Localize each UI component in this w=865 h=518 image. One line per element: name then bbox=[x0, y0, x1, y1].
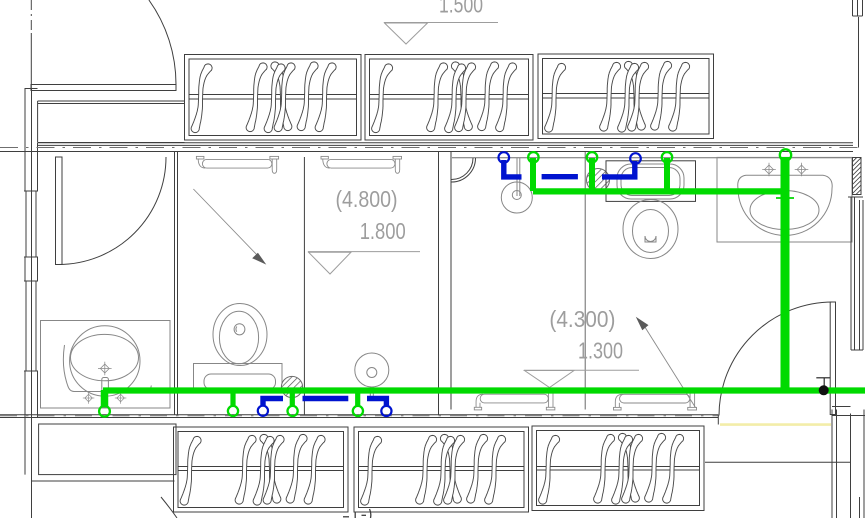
svg-text:1.800: 1.800 bbox=[360, 218, 406, 244]
svg-text:1.500: 1.500 bbox=[439, 0, 483, 18]
svg-text:(4.800): (4.800) bbox=[336, 186, 398, 212]
svg-text:1.300: 1.300 bbox=[578, 338, 623, 364]
svg-text:(4.300): (4.300) bbox=[549, 306, 615, 332]
